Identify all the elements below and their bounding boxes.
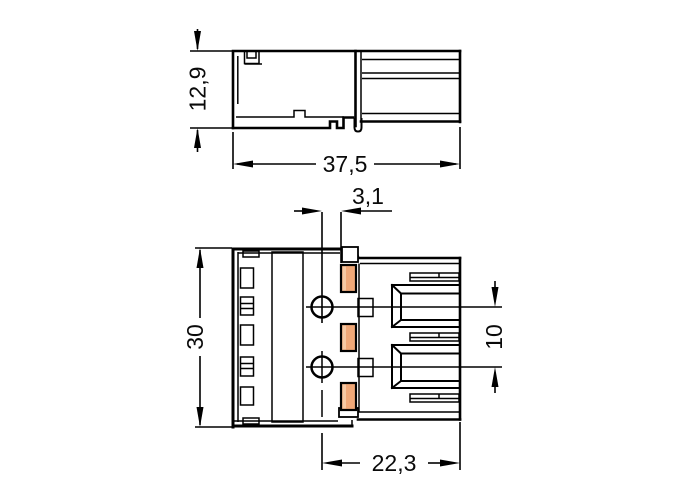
front-view: [233, 247, 502, 427]
coding-slots: [410, 273, 459, 402]
contacts: [341, 265, 356, 410]
dim-pole-pitch-label: 10: [481, 324, 507, 350]
dim-side-width: 37,5: [233, 127, 460, 177]
contact-2-highlight: [343, 326, 347, 350]
contact-housing-top: [342, 247, 358, 262]
dim-side-width-label: 37,5: [323, 151, 368, 177]
contact-3-highlight: [343, 385, 347, 409]
drawing-canvas: 12,9 37,5: [0, 0, 697, 496]
dim-side-height-label: 12,9: [185, 67, 211, 112]
dim-side-height: 12,9: [185, 29, 237, 152]
dim-front-height-label: 30: [182, 324, 208, 350]
marking-field: [272, 252, 303, 422]
side-view: [233, 51, 460, 132]
dim-front-depth-label: 22,3: [372, 450, 417, 476]
dim-front-height: 30: [182, 248, 232, 427]
dim-front-offset-label: 3,1: [352, 183, 384, 209]
front-body-outline: [233, 249, 356, 427]
side-bottom-profile: [233, 118, 353, 129]
dim-pole-pitch: 10: [481, 281, 507, 393]
front-plug-frame: [358, 258, 460, 420]
plug-shaft-lines: [361, 60, 460, 122]
connector-drawing: 12,9 37,5: [0, 0, 697, 496]
clamp-openings: [241, 251, 260, 424]
side-inner-floor: [236, 111, 344, 118]
socket-opening-1: [392, 285, 460, 327]
contact-1-highlight: [343, 267, 347, 291]
dim-front-depth: 22,3: [322, 422, 460, 476]
latch-notch: [245, 51, 263, 64]
